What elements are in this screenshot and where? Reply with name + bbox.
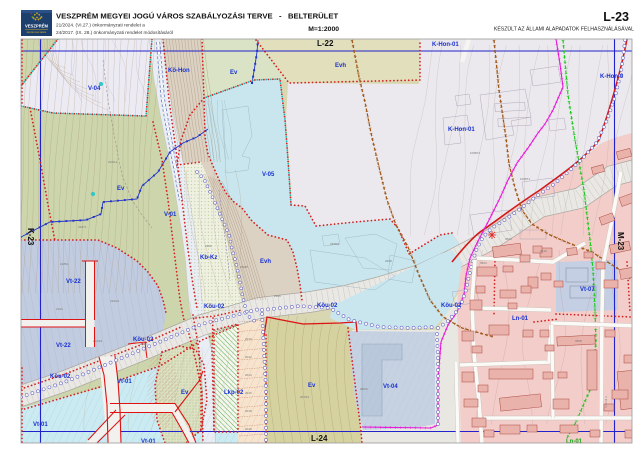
svg-text:24/2017. (IX. 28.) önkormányza: 24/2017. (IX. 28.) önkormányzati rendele… xyxy=(56,30,173,35)
svg-text:2019: 2019 xyxy=(245,427,252,431)
svg-text:Vt-01: Vt-01 xyxy=(117,379,132,385)
svg-text:VESZPRÉM MEGYEI JOGÚ VÁROS SZA: VESZPRÉM MEGYEI JOGÚ VÁROS SZABÁLYOZÁSI … xyxy=(56,12,338,21)
svg-text:Evh: Evh xyxy=(335,63,346,69)
svg-text:21/2024. (VI.27.) önkormányzat: 21/2024. (VI.27.) önkormányzati rendelet… xyxy=(56,23,145,28)
svg-text:L-22: L-22 xyxy=(317,39,334,48)
svg-text:V-01: V-01 xyxy=(164,212,177,218)
svg-text:Köu-02: Köu-02 xyxy=(50,374,71,380)
svg-text:2012: 2012 xyxy=(245,355,252,359)
svg-text:2164: 2164 xyxy=(56,307,63,311)
svg-text:109871: 109871 xyxy=(520,177,530,181)
svg-text:Ln-01: Ln-01 xyxy=(512,316,529,322)
svg-text:Vt-22: Vt-22 xyxy=(56,343,71,349)
svg-text:Köu-02: Köu-02 xyxy=(317,303,338,309)
svg-text:3504: 3504 xyxy=(480,261,487,265)
svg-text:2163/4: 2163/4 xyxy=(93,339,103,343)
svg-text:2169-2: 2169-2 xyxy=(108,160,118,164)
svg-text:2016: 2016 xyxy=(245,391,252,395)
svg-text:090/5: 090/5 xyxy=(360,387,368,391)
svg-text:2198: 2198 xyxy=(140,342,147,346)
svg-text:K-Hon-01: K-Hon-01 xyxy=(432,42,459,48)
svg-text:2014: 2014 xyxy=(245,373,252,377)
svg-text:M=1:2000: M=1:2000 xyxy=(308,26,339,33)
svg-text:23987: 23987 xyxy=(240,265,249,269)
svg-text:21871: 21871 xyxy=(78,225,87,229)
svg-text:VESZPRÉM: VESZPRÉM xyxy=(25,24,49,29)
svg-text:2070/1: 2070/1 xyxy=(300,395,310,399)
svg-text:K-Hon-01: K-Hon-01 xyxy=(448,127,475,133)
svg-text:KÉSZÜLT AZ ÁLLAMI ALAPADATOK F: KÉSZÜLT AZ ÁLLAMI ALAPADATOK FELHASZNÁLÁ… xyxy=(494,26,634,33)
svg-text:3508: 3508 xyxy=(575,339,582,343)
svg-text:Kö-Hon: Kö-Hon xyxy=(168,68,190,74)
svg-text:Ev: Ev xyxy=(230,70,238,76)
svg-text:V-05: V-05 xyxy=(262,172,275,178)
svg-text:2306: 2306 xyxy=(274,294,281,298)
svg-text:3503: 3503 xyxy=(505,237,512,241)
svg-text:Köu-02: Köu-02 xyxy=(441,303,462,309)
svg-text:Evh: Evh xyxy=(260,259,271,265)
svg-text:2309: 2309 xyxy=(205,244,212,248)
svg-text:Vt-07: Vt-07 xyxy=(580,287,595,293)
svg-text:Vt-01: Vt-01 xyxy=(33,422,48,428)
svg-text:K-Hon-0: K-Hon-0 xyxy=(600,74,624,80)
svg-text:2010: 2010 xyxy=(245,337,252,341)
svg-text:Ev: Ev xyxy=(117,186,125,192)
svg-text:M-23: M-23 xyxy=(616,232,625,251)
svg-text:21861: 21861 xyxy=(60,262,69,266)
svg-text:109872: 109872 xyxy=(470,151,480,155)
svg-text:Vt-04: Vt-04 xyxy=(383,384,398,390)
svg-text:MEGYEI JOGÚ VÁROS: MEGYEI JOGÚ VÁROS xyxy=(27,31,47,34)
svg-text:2018: 2018 xyxy=(245,409,252,413)
svg-text:2308/2: 2308/2 xyxy=(330,242,340,246)
svg-text:Lkp-02: Lkp-02 xyxy=(224,390,244,396)
svg-text:L-24: L-24 xyxy=(311,434,328,443)
svg-text:Ev: Ev xyxy=(181,390,189,396)
svg-text:L-23: L-23 xyxy=(603,10,629,24)
svg-text:Kb-Kz: Kb-Kz xyxy=(200,255,217,261)
svg-text:V-04: V-04 xyxy=(88,86,101,92)
svg-text:2308: 2308 xyxy=(385,259,392,263)
svg-text:Ev: Ev xyxy=(308,383,316,389)
svg-text:3510: 3510 xyxy=(540,249,547,253)
svg-text:Szondi u.: Szondi u. xyxy=(604,395,608,408)
svg-text:2163/2: 2163/2 xyxy=(110,299,120,303)
svg-text:Köu-02: Köu-02 xyxy=(204,304,225,310)
svg-text:K-23: K-23 xyxy=(26,228,35,246)
svg-text:Vt-22: Vt-22 xyxy=(66,279,81,285)
